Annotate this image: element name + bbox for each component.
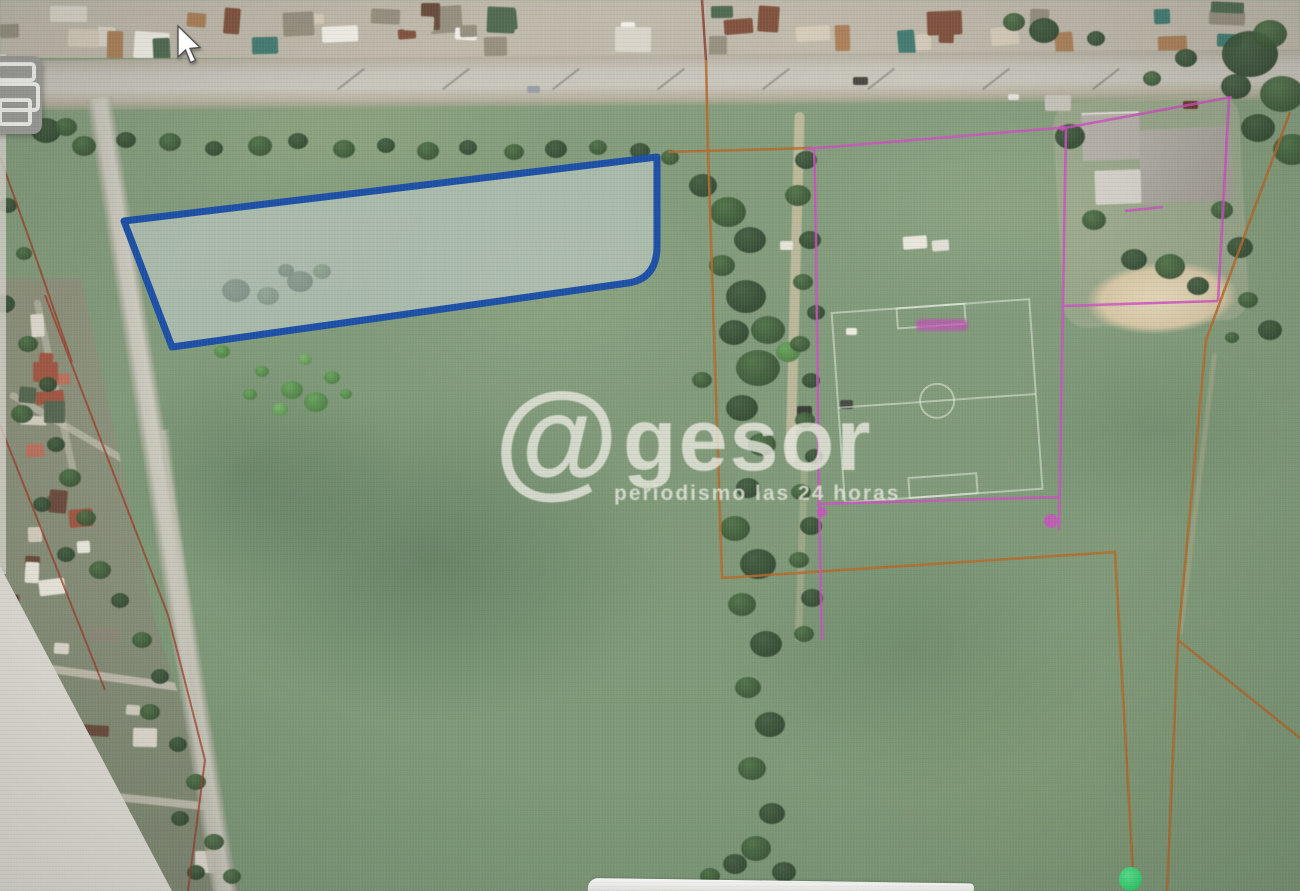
watermark-brand: gesor <box>623 396 873 484</box>
watermark-at-icon: @ <box>494 380 619 498</box>
mouse-cursor-icon <box>176 24 202 66</box>
parcel-label-blur <box>916 319 968 331</box>
map-marker-dot[interactable] <box>1119 867 1142 891</box>
selected-parcel-polygon[interactable] <box>124 157 657 347</box>
map-canvas[interactable]: @ gesor periodismo las 24 horas <box>0 0 1300 891</box>
watermark: @ gesor periodismo las 24 horas <box>494 380 900 506</box>
print-button-fragment[interactable] <box>0 56 42 134</box>
printer-icon <box>0 56 42 134</box>
watermark-tagline: periodismo las 24 horas <box>614 482 900 506</box>
